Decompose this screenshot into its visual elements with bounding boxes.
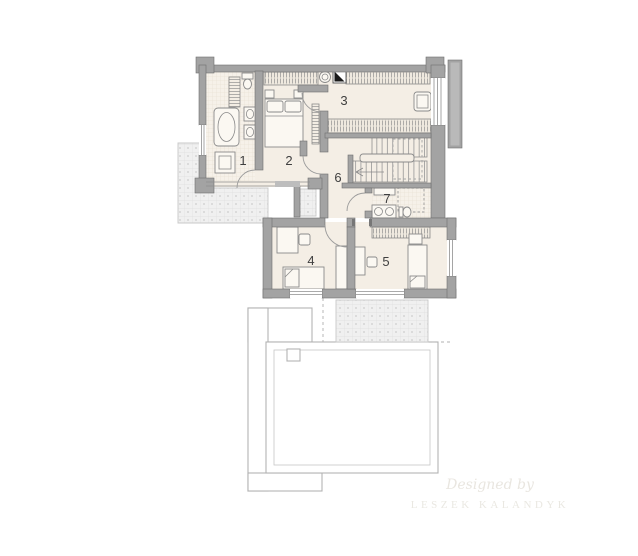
chair — [299, 234, 310, 245]
room3-bottom-wardrobe-hatch — [327, 119, 431, 133]
floor-plan-page: 1 2 3 4 5 6 7 Designed by LESZEK KALANDY… — [0, 0, 638, 556]
balcony-door-corridor — [356, 289, 404, 298]
stair-handrail — [360, 154, 414, 162]
watermark-line1: Designed by — [445, 477, 535, 493]
toilet-cistern — [242, 73, 253, 79]
pillow — [410, 276, 425, 288]
chimney-outline — [287, 349, 300, 361]
nightstand-left — [265, 90, 274, 98]
wall-lowerblock-right-upper — [447, 218, 456, 240]
toilet-cistern — [399, 207, 403, 217]
shaft-hatch — [300, 189, 316, 216]
radiator — [229, 77, 240, 107]
wall-room3-bottom — [325, 133, 431, 138]
wall-right-lower — [431, 125, 445, 218]
wall-room4-corridor — [347, 227, 355, 289]
chair — [367, 257, 377, 267]
wall-lowerblock-bottom-1 — [263, 289, 290, 298]
wall-stair-west — [348, 155, 353, 183]
lower-roof-outline — [266, 342, 438, 473]
pillar-bottom-left — [195, 178, 214, 193]
wall-lowerblock-bottom-2 — [322, 289, 356, 298]
window-room4 — [290, 289, 322, 298]
toilet-bowl — [244, 79, 252, 89]
wall-lowerblock-top-east — [370, 218, 456, 227]
window-room5 — [447, 240, 456, 276]
room-label-3: 3 — [340, 93, 347, 108]
window-room3 — [431, 78, 445, 125]
wall-room7-west-upper — [365, 188, 372, 193]
nightstand — [409, 234, 422, 244]
room3-top-wardrobe-hatch — [346, 71, 430, 84]
wardrobe — [336, 246, 347, 289]
room-label-5: 5 — [382, 254, 389, 269]
pillow-right — [285, 101, 301, 112]
wall-left-upper — [199, 65, 206, 125]
room-label-7: 7 — [383, 191, 390, 206]
bottom-strip-outline — [248, 473, 322, 491]
wall-room2-hall-upper — [320, 111, 328, 152]
room2-wardrobe-hatch — [264, 72, 318, 85]
watermark-line2: LESZEK KALANDYK — [411, 499, 570, 511]
washbasin-counter — [372, 205, 396, 218]
wall-stair-south — [342, 183, 431, 188]
watermark: Designed by LESZEK KALANDYK — [411, 477, 570, 511]
wall-lowerblock-left — [263, 218, 272, 298]
wall-stub-room2-side — [300, 141, 307, 156]
floor-plan-drawing: 1 2 3 4 5 6 7 Designed by LESZEK KALANDY… — [0, 0, 638, 556]
desk — [277, 227, 298, 253]
door-jamb-left — [352, 219, 355, 226]
wall-top — [199, 65, 445, 72]
right-balcony — [336, 300, 428, 342]
pillow-left — [267, 101, 283, 112]
room-label-2: 2 — [285, 153, 292, 168]
room-label-1: 1 — [239, 153, 246, 168]
detached-wall-inner — [451, 63, 460, 146]
wall-lowerblock-right-lower — [447, 276, 456, 298]
washing-machine — [320, 72, 331, 83]
wall-stub-room2-top — [298, 85, 328, 92]
door-jamb-right — [369, 219, 372, 226]
post-room2-bottom — [308, 178, 322, 189]
wall-room1-room2 — [255, 71, 263, 170]
wall-room7-west-lower — [365, 211, 372, 218]
toilet-bowl — [403, 207, 411, 217]
room-label-6: 6 — [334, 170, 341, 185]
window-left-wall — [199, 125, 206, 155]
room-label-4: 4 — [307, 253, 314, 268]
wall-shaft — [294, 186, 300, 217]
wall-right-upper — [431, 65, 445, 78]
left-strip-outline — [248, 308, 268, 491]
shower — [215, 152, 235, 173]
pillow — [285, 269, 299, 287]
glazing-sill — [275, 181, 300, 187]
